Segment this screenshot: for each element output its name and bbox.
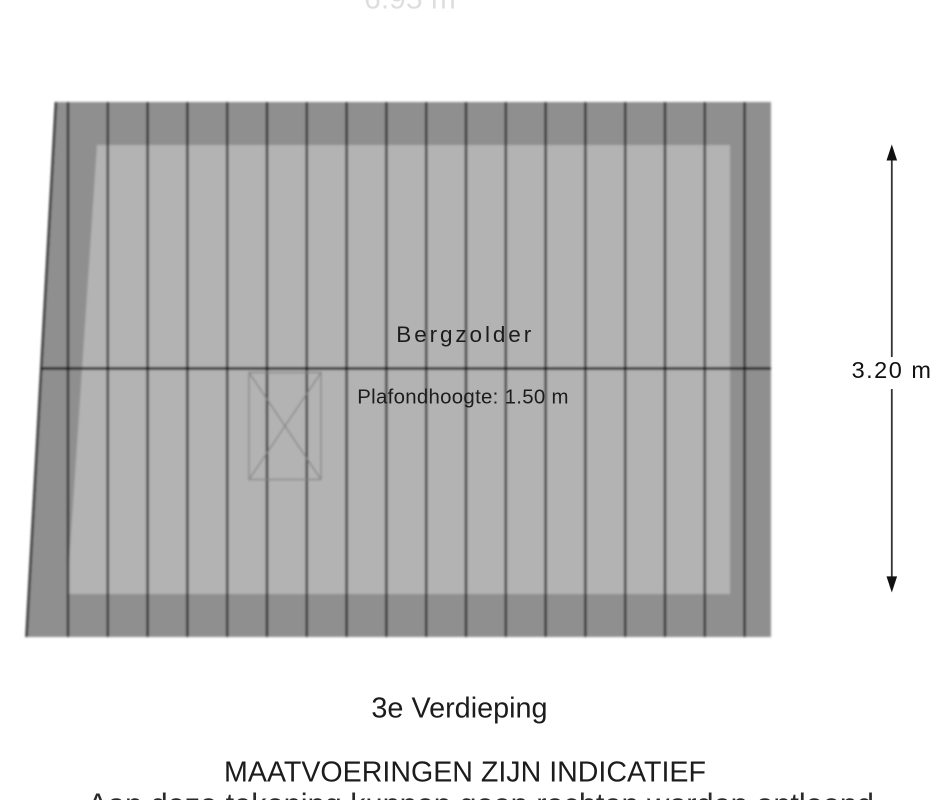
svg-text:6.95 m: 6.95 m [364,0,456,16]
svg-text:Bergzolder: Bergzolder [396,322,534,347]
svg-text:3e Verdieping: 3e Verdieping [371,693,547,725]
svg-text:3.20 m: 3.20 m [852,357,933,383]
svg-text:MAATVOERINGEN ZIJN INDICATIEF: MAATVOERINGEN ZIJN INDICATIEF [224,756,706,788]
svg-text:Plafondhoogte: 1.50 m: Plafondhoogte: 1.50 m [357,387,569,409]
svg-text:Aan deze tekening kunnen geen: Aan deze tekening kunnen geen rechten wo… [87,787,882,800]
